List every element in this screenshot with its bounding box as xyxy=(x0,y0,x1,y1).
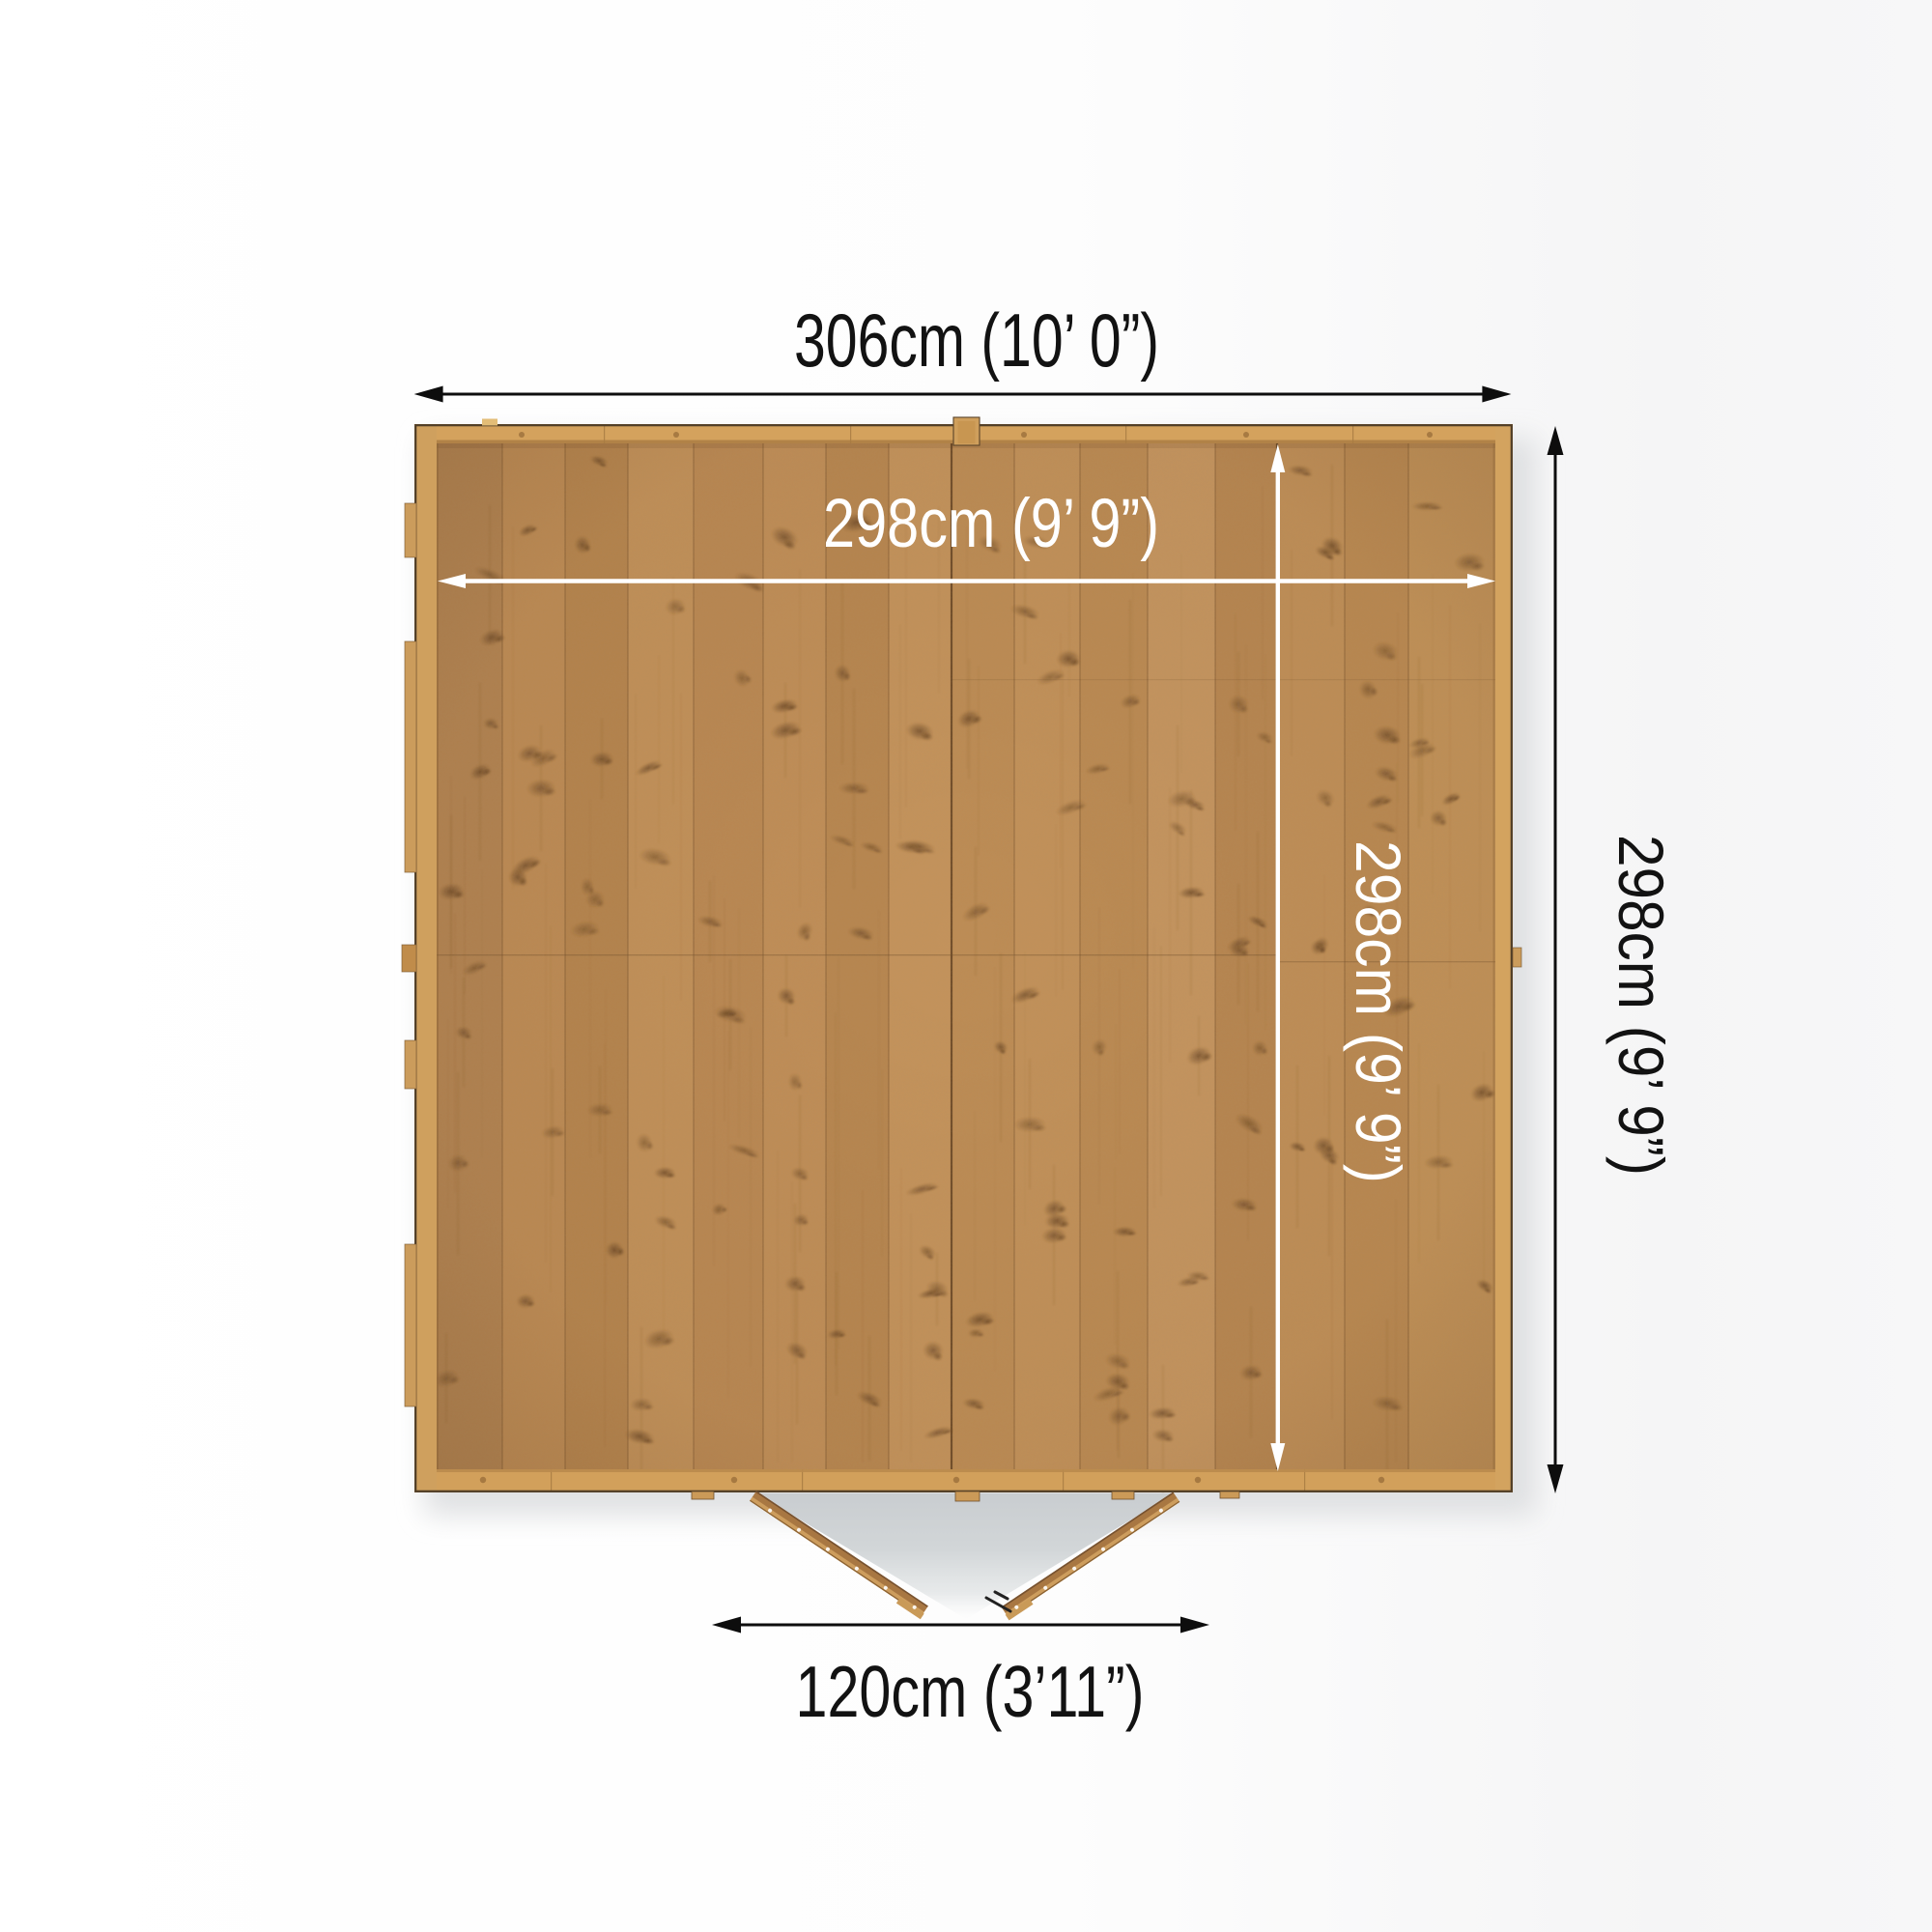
svg-text:298cm (9’ 9”): 298cm (9’ 9”) xyxy=(823,486,1159,562)
svg-text:120cm (3’11”): 120cm (3’11”) xyxy=(796,1651,1145,1732)
svg-text:298cm (9’ 9”): 298cm (9’ 9”) xyxy=(1343,840,1414,1183)
svg-text:306cm (10’ 0”): 306cm (10’ 0”) xyxy=(794,298,1159,383)
svg-text:298cm (9’ 9”): 298cm (9’ 9”) xyxy=(1605,835,1677,1176)
